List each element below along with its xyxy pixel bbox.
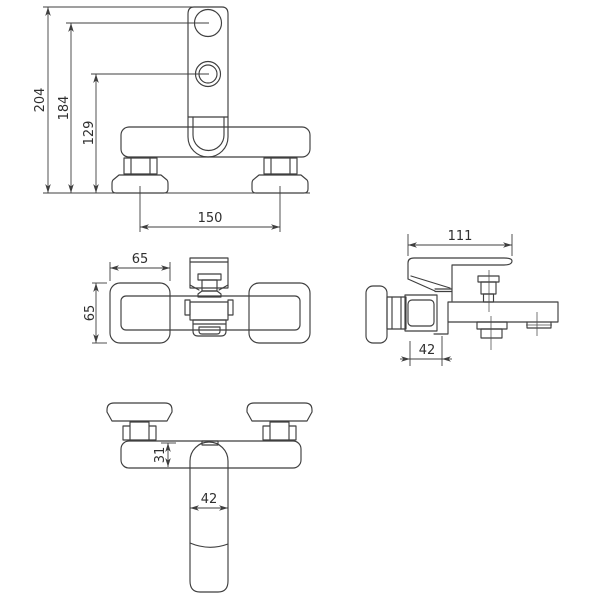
knob-neck [484, 294, 494, 302]
hex-nut-right [263, 422, 296, 440]
hex-nut-left [124, 158, 157, 174]
dim-label-total-height: 204 [33, 88, 48, 113]
diverter-stem [202, 280, 217, 291]
hex-nut-right [264, 158, 297, 174]
cartridge-dome [190, 442, 228, 468]
handle-chin-line [408, 279, 435, 291]
mixer-body-bar [121, 127, 310, 157]
hex-nut-left [123, 422, 156, 440]
valve-block-side [405, 295, 437, 331]
valve-block-inner [408, 300, 434, 326]
knob-cap [478, 276, 499, 282]
nut-outline [124, 158, 157, 174]
wall-flange-right [247, 403, 312, 421]
dim-label-handle-width: 65 [83, 305, 98, 322]
dim-label-upper-outlet-height: 184 [57, 96, 72, 121]
drawing-canvas: 204 184 129 150 [0, 0, 600, 600]
wall-flange-left [107, 403, 172, 421]
body-bar-plan [121, 296, 300, 330]
handle-plan-left [110, 283, 170, 343]
dim-label-body-depth: 42 [419, 343, 436, 358]
diverter-knob-side [478, 270, 499, 312]
aerator-flange [477, 322, 507, 329]
diverter-flange [198, 274, 221, 280]
wall-flange-side [366, 286, 387, 343]
spout-lip-curve [190, 543, 228, 547]
dim-label-mount-centers: 150 [198, 211, 223, 226]
dim-label-spout-width: 42 [201, 492, 218, 507]
nut-outline [123, 422, 156, 440]
handle-inner-line [411, 276, 450, 288]
nut-outline [387, 297, 406, 329]
top-view: 65 65 [83, 252, 310, 343]
body-foot-step [434, 322, 448, 334]
dim-label-lower-outlet-height: 129 [82, 121, 97, 146]
nut-outline [263, 422, 296, 440]
handle-plan-right [249, 283, 310, 343]
spout-column [190, 468, 228, 592]
aerator-outlet-side [477, 316, 507, 350]
hex-nut-side [387, 297, 406, 329]
valve-block [190, 302, 228, 320]
aerator-body [481, 329, 502, 338]
dim-label-body-height: 31 [153, 447, 168, 464]
valve-body-plan [185, 300, 233, 336]
front-spout-view: 31 42 [107, 403, 312, 592]
side-view: 111 42 [366, 229, 558, 366]
side-tab-right [228, 300, 233, 315]
technical-drawing-svg: 204 184 129 150 [0, 0, 600, 600]
knob-body [481, 282, 496, 294]
front-view: 204 184 129 150 [33, 7, 310, 232]
diverter-plan [198, 274, 221, 297]
nut-outline [264, 158, 297, 174]
dim-label-handle-length: 65 [132, 252, 149, 267]
hose-nipple-side [526, 312, 552, 336]
side-tab-left [185, 300, 190, 315]
riser-u-bend-inner [193, 117, 224, 150]
dim-label-total-depth: 111 [448, 229, 473, 244]
spout-body-side [448, 302, 558, 322]
